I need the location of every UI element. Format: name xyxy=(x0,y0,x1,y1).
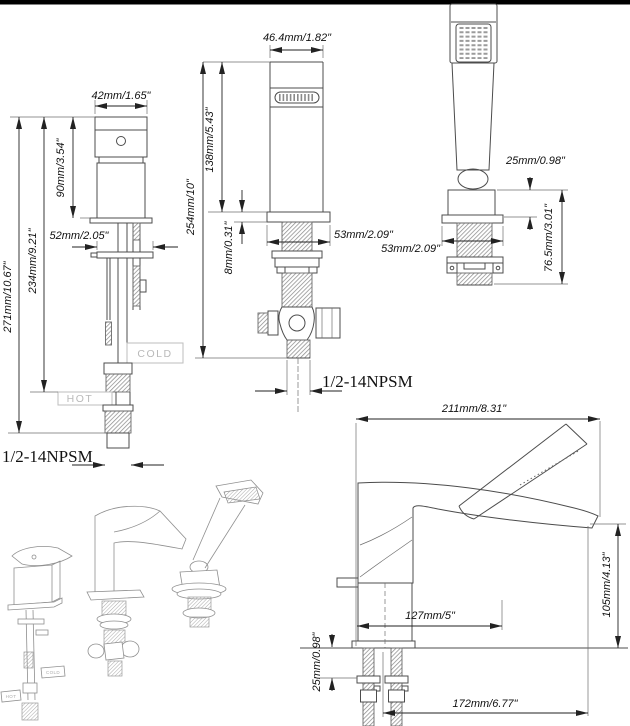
iso-valve-body xyxy=(14,565,52,605)
dim-shower-base-height: 25mm/0.98" xyxy=(505,155,566,167)
spray-holes-dotted-line xyxy=(520,450,580,485)
dim-valve-top-width: 42mm/1.65" xyxy=(92,90,152,102)
dim-shower-flange-width: 53mm/2.09" xyxy=(381,243,441,255)
shower-base-block xyxy=(448,190,495,217)
shower-handle-body xyxy=(452,63,494,170)
hot-label: HOT xyxy=(67,393,94,405)
figure-spout-front: 46.4mm/1.82" 138mm/5.43" 254mm/10" 8mm/0… xyxy=(185,32,413,412)
figure-valve-front: COLD HOT 42mm/1.65" 90mm/3.54" 234mm/9.2… xyxy=(2,90,183,466)
dim-assembled-deck-offset: 25mm/0.98" xyxy=(311,631,323,692)
dim-assembled-spout-height: 105mm/4.13" xyxy=(601,551,613,617)
dim-valve-handle-height: 90mm/3.54" xyxy=(55,137,67,197)
iso-spout xyxy=(95,506,186,592)
technical-drawing: COLD HOT 42mm/1.65" 90mm/3.54" 234mm/9.2… xyxy=(0,0,630,726)
dim-spout-flange-thickness: 8mm/0.31" xyxy=(223,221,235,275)
diverter-hex-nut xyxy=(316,308,340,338)
dim-assembled-overall: 211mm/8.31" xyxy=(441,403,507,415)
shower-flange xyxy=(442,215,503,223)
spout-flange xyxy=(267,212,330,222)
dim-valve-plate-width: 52mm/2.05" xyxy=(50,230,110,242)
dim-shower-under-deck: 76.5mm/3.01" xyxy=(543,203,555,272)
dim-valve-height-mid: 234mm/9.21" xyxy=(27,227,39,294)
figure-assembled-side: 211mm/8.31" 105mm/4.13" 127mm/5" 25mm/0.… xyxy=(300,403,628,726)
ball-joint xyxy=(458,169,488,189)
iso-valve-handle xyxy=(12,546,72,565)
dim-spout-flange-width: 53mm/2.09" xyxy=(334,229,394,241)
top-border-bar xyxy=(0,0,630,5)
spout-thread-spec: 1/2-14NPSM xyxy=(322,372,413,391)
handle-screw-hole xyxy=(117,137,126,146)
diverter-body xyxy=(279,307,314,340)
valve-body xyxy=(97,163,145,218)
iso-cold-label: COLD xyxy=(46,670,60,675)
dim-assembled-reach: 172mm/6.77" xyxy=(452,698,518,710)
valve-deck-flange xyxy=(90,218,152,223)
supply-thread xyxy=(105,411,131,433)
spray-face xyxy=(456,24,491,62)
mounting-bracket xyxy=(97,252,153,258)
dim-spout-height-total: 254mm/10" xyxy=(185,178,197,236)
dim-assembled-body-length: 127mm/5" xyxy=(405,610,456,622)
dim-spout-body-height: 138mm/5.43" xyxy=(204,106,216,172)
figure-hand-shower-front: 25mm/0.98" 76.5mm/3.01" 53mm/2.09" xyxy=(381,4,568,285)
figure-iso-parts: COLD HOT xyxy=(1,480,263,720)
dim-spout-top-width: 46.4mm/1.82" xyxy=(263,32,332,44)
assembled-spout xyxy=(358,482,598,583)
valve-thread-spec: 1/2-14NPSM xyxy=(2,447,93,466)
drawing-canvas: COLD HOT 42mm/1.65" 90mm/3.54" 234mm/9.2… xyxy=(0,0,630,726)
iso-hot-label: HOT xyxy=(6,694,17,699)
dim-valve-height-total: 271mm/10.67" xyxy=(2,260,14,333)
cold-label: COLD xyxy=(137,348,172,360)
